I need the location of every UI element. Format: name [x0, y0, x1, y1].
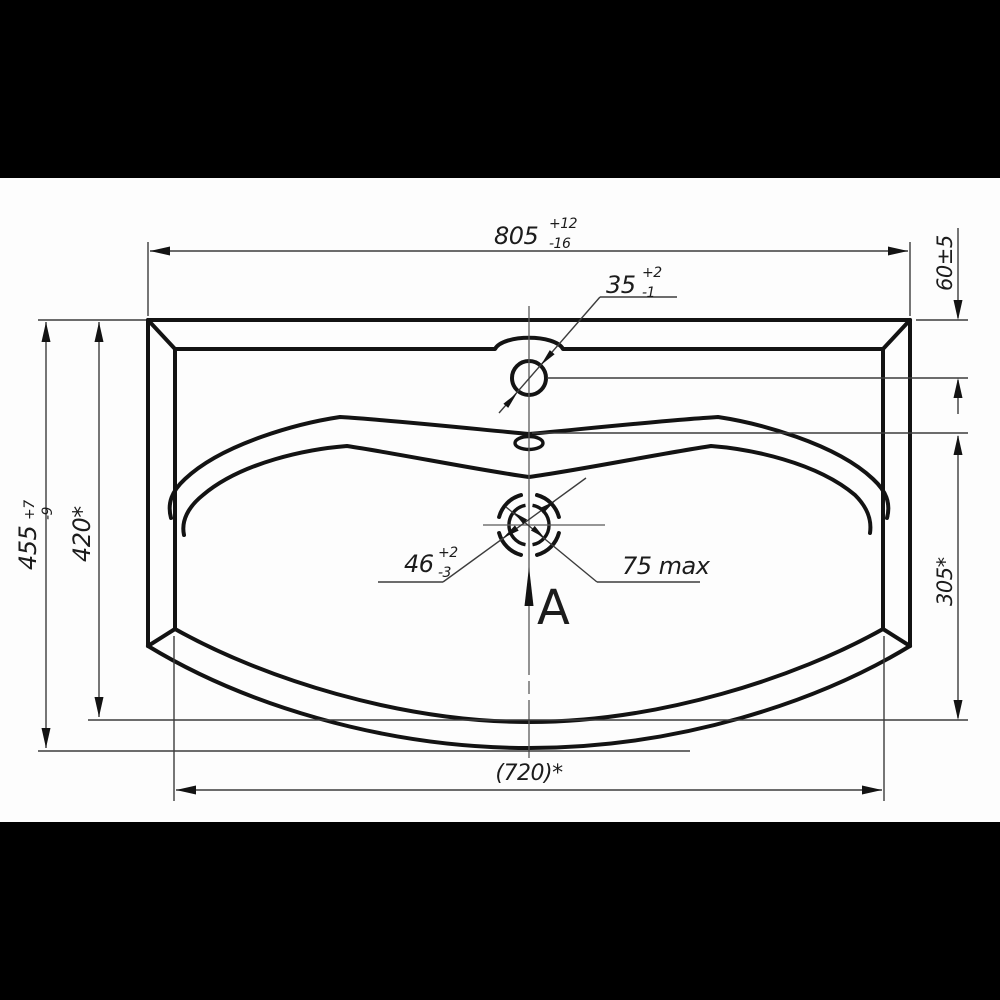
dim-805-tol-lower: -16 — [549, 236, 571, 252]
dim-75max-value: 75 max — [622, 552, 711, 580]
arrow-60-bottom — [954, 378, 963, 398]
drain-outer-circle-se-arc — [537, 533, 559, 555]
dim-35-tol-upper: +2 — [642, 265, 662, 281]
dim-805-value: 805 — [494, 222, 538, 250]
arrow-420-bottom — [95, 697, 104, 717]
drawing-page: 805 +12 -16 35 +2 -1 60±5 305* 455 +7 -9… — [0, 0, 1000, 1000]
view-label-a: A — [537, 580, 570, 636]
arrow-75-se — [531, 526, 544, 538]
dim-805-tol-upper: +12 — [549, 216, 578, 232]
drain-outer-circle-sw-arc — [499, 533, 521, 555]
dim-455-tol-lower: -9 — [40, 506, 56, 520]
drain-outer-circle-nw-arc — [499, 495, 521, 517]
dim-455-value: 455 — [14, 526, 42, 570]
arrow-455-top — [42, 322, 51, 342]
arrow-60-top — [954, 300, 963, 320]
dim-35-tol-lower: -1 — [642, 285, 655, 301]
arrow-805-left — [150, 247, 170, 256]
chamfer-top-right — [883, 320, 910, 349]
arrow-805-right — [888, 247, 908, 256]
drain-hole — [483, 495, 605, 555]
chamfer-top-left — [148, 320, 175, 349]
arrow-420-top — [95, 322, 104, 342]
arrow-720-left — [176, 786, 196, 795]
dimension-lines — [38, 228, 968, 801]
dim-720-value: (720)* — [495, 761, 563, 786]
dim-420-value: 420* — [68, 506, 96, 562]
chamfer-bottom-right — [883, 629, 910, 646]
view-direction-arrow — [525, 567, 534, 606]
arrow-305-bottom — [954, 700, 963, 720]
dim-46-value: 46 — [404, 550, 434, 578]
arrow-720-right — [862, 786, 882, 795]
washbasin-technical-drawing: 805 +12 -16 35 +2 -1 60±5 305* 455 +7 -9… — [0, 178, 1000, 822]
letterbox-bottom — [0, 822, 1000, 1000]
arrow-455-bottom — [42, 728, 51, 748]
drawing-sheet: 805 +12 -16 35 +2 -1 60±5 305* 455 +7 -9… — [0, 178, 1000, 822]
dim-455-tol-upper: +7 — [22, 500, 38, 520]
dim-35-value: 35 — [606, 271, 636, 299]
dim-46-tol-lower: -3 — [438, 565, 451, 581]
dim-305-value: 305* — [933, 557, 957, 606]
dim-46-tol-upper: +2 — [438, 545, 458, 561]
arrow-305-top — [954, 435, 963, 455]
dim-60-value: 60±5 — [933, 235, 957, 291]
letterbox-top — [0, 0, 1000, 178]
chamfer-bottom-left — [148, 629, 175, 646]
dimension-labels: 805 +12 -16 35 +2 -1 60±5 305* 455 +7 -9… — [14, 216, 957, 786]
arrowheads — [42, 247, 963, 795]
